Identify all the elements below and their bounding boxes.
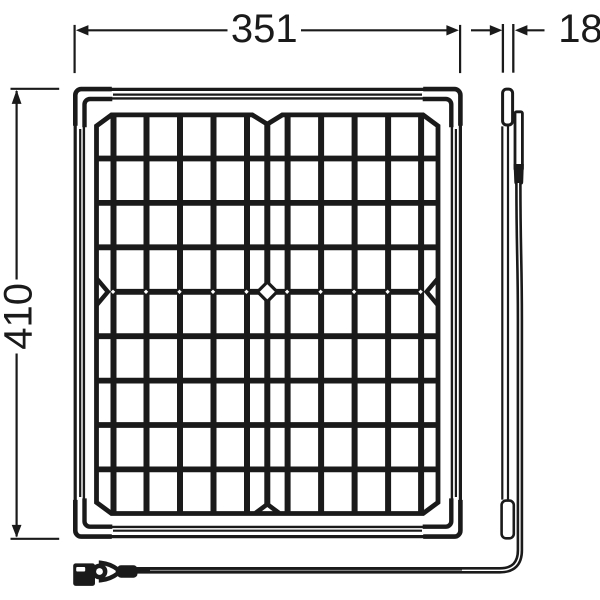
svg-text:18: 18 xyxy=(558,7,600,51)
svg-text:351: 351 xyxy=(231,7,298,51)
svg-text:410: 410 xyxy=(0,283,40,350)
